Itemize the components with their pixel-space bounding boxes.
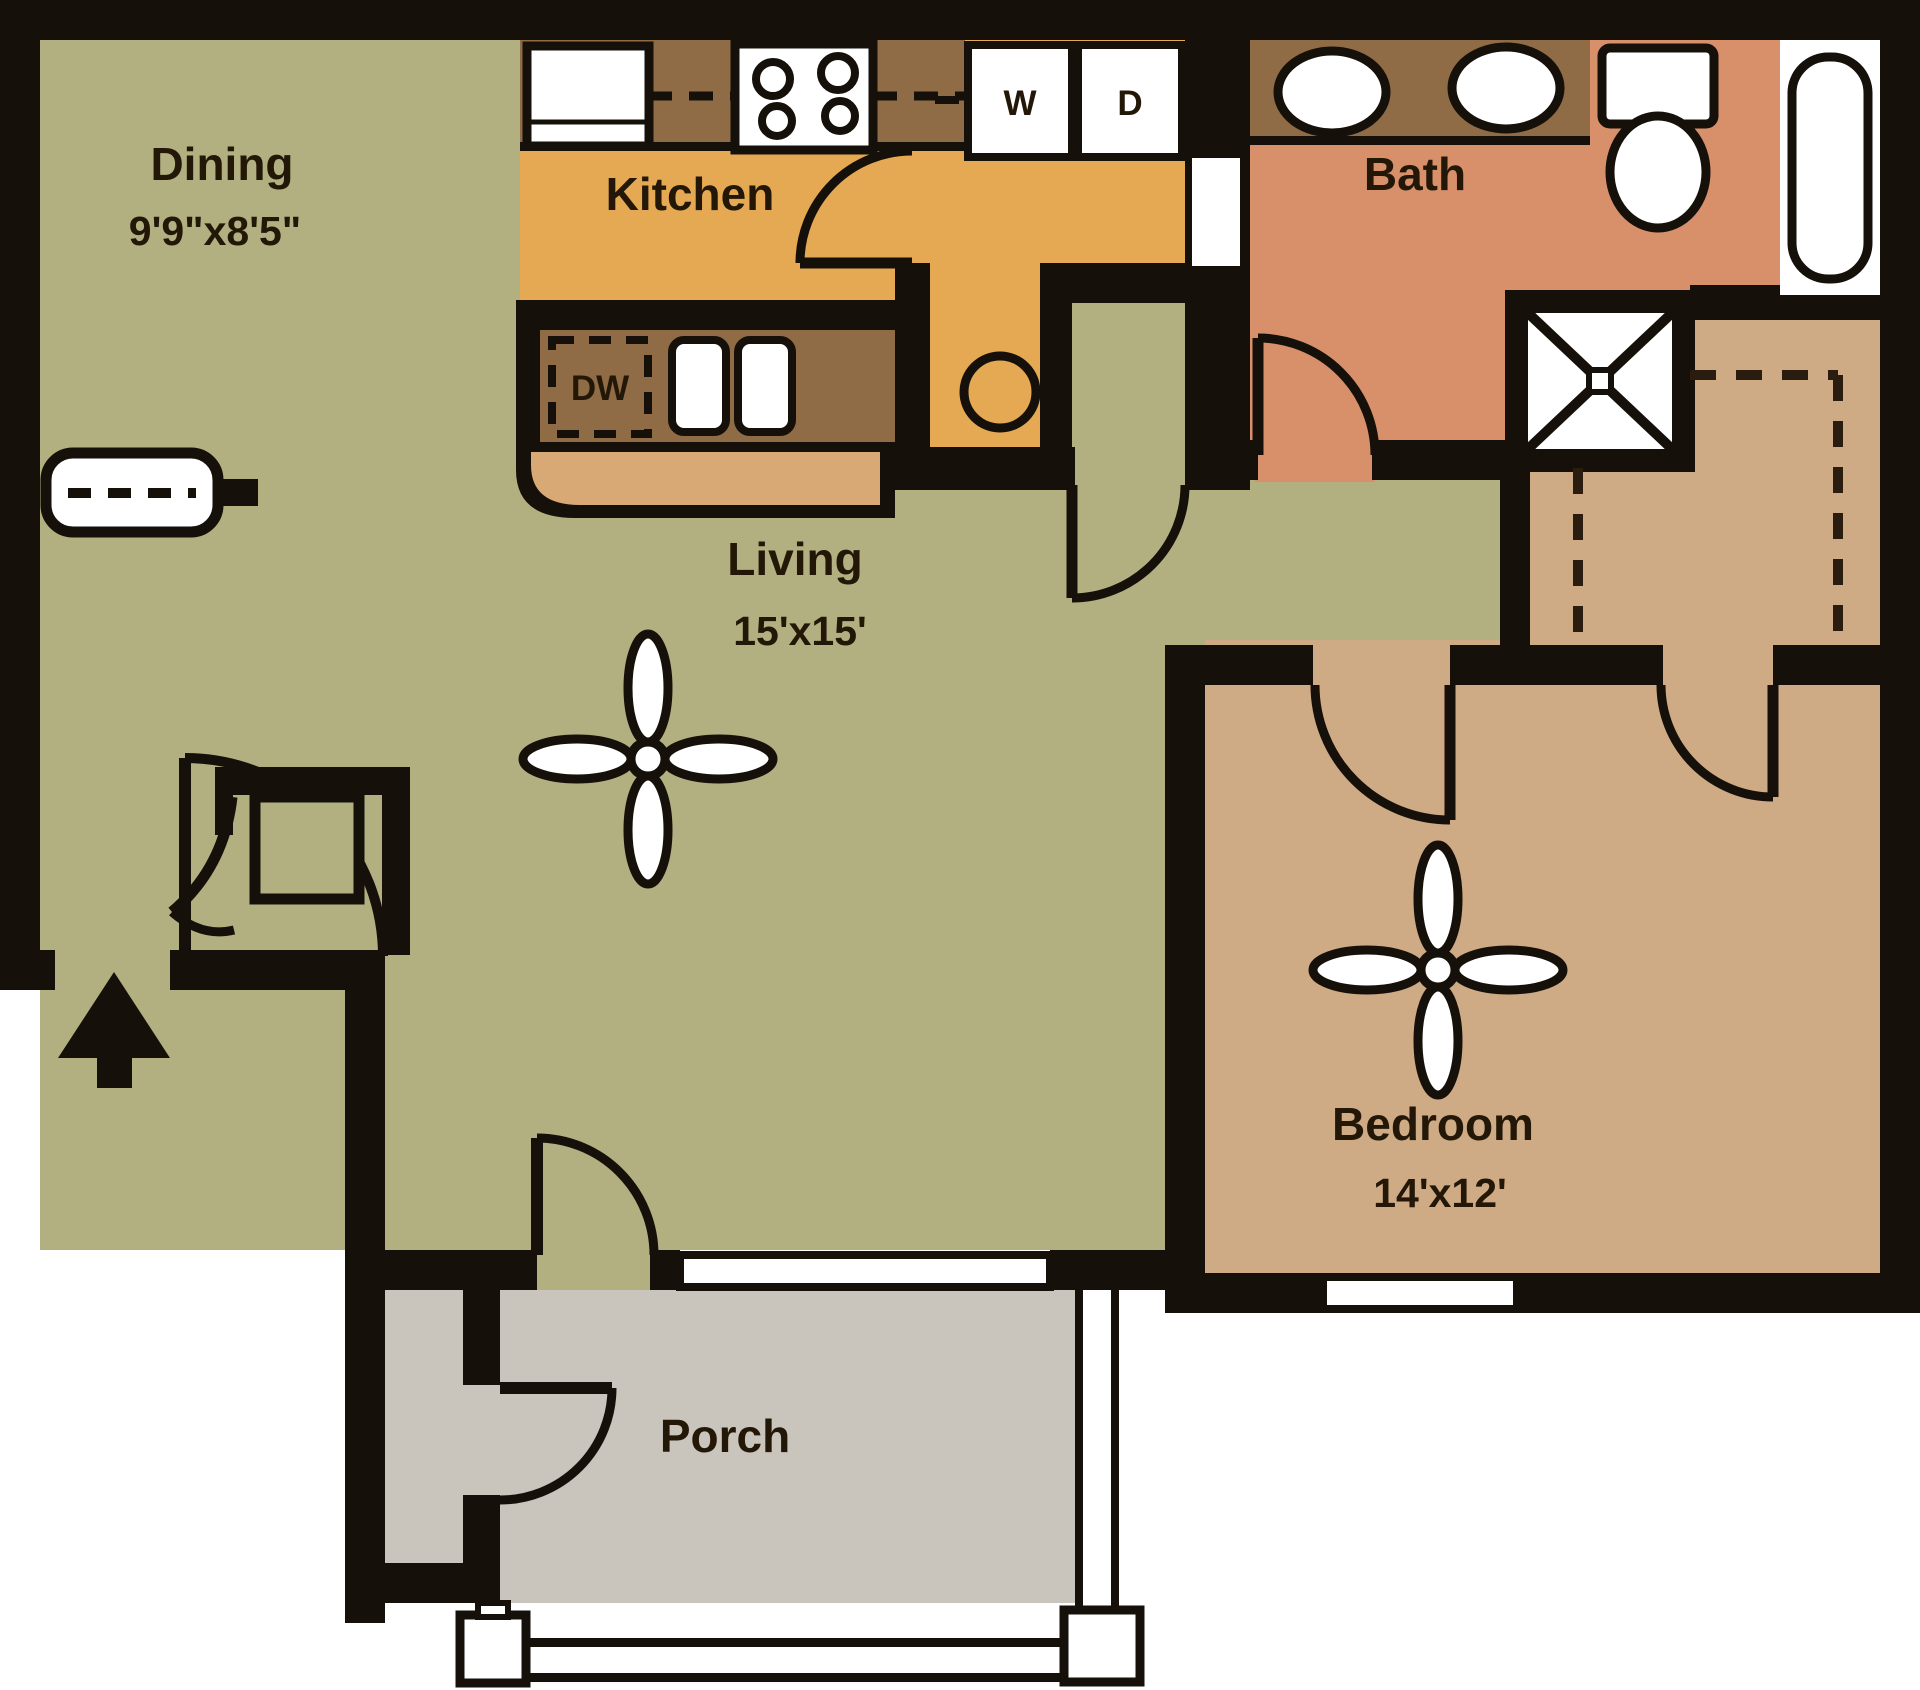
wall-porch-storage-right-a [463,1290,500,1385]
washer-label: W [1003,84,1036,123]
bedroom-dims: 14'x12' [1373,1170,1507,1216]
railing-line [1111,1290,1119,1620]
refrigerator-icon [527,46,649,146]
railing-line [1075,1290,1083,1620]
wall-left [0,0,40,990]
porch-door-gap-floor [537,1250,650,1290]
wall-living-bottom-c [1050,1250,1165,1290]
living-label: Living [727,533,862,585]
floor-plan-canvas: Dining 9'9"x8'5" Kitchen Bath Living 15'… [0,0,1920,1690]
dishwasher-label: DW [571,369,629,408]
wall-top [0,0,1920,40]
bathtub-icon [1792,57,1868,279]
wall-bedroom-top-a [1205,645,1313,685]
porch-post-right [1064,1610,1140,1682]
bedroom-alcove-floor-left [1530,443,1690,655]
shower-drain [1589,370,1611,392]
dryer-label: D [1117,84,1142,123]
laundry-bath-opening [1192,158,1240,266]
wall-bath-bottom-b [1372,440,1510,480]
pantry-closet-floor [1072,303,1185,480]
wall-right [1880,0,1920,1313]
railing-line [520,1638,1080,1647]
wall-living-bottom-a [345,1250,537,1290]
bath-door-gap-floor [1255,438,1375,482]
kitchen-label: Kitchen [606,168,775,220]
wall-living-left [345,950,385,1290]
wall-laundry-bottom [1040,263,1185,303]
living-dims: 15'x15' [733,608,867,654]
railing-line [520,1673,1080,1682]
wall-bedroom-top-b [1450,645,1663,685]
bedroom-label: Bedroom [1332,1098,1534,1150]
railing-band [520,1647,1080,1673]
wall-porch-storage-bottom [385,1563,500,1603]
bath-vanity-edge [1250,136,1590,145]
vanity-sink-left-icon [1278,51,1386,133]
railing-band [1083,1290,1111,1620]
dining-label: Dining [150,138,293,190]
burner-icon [821,56,855,90]
wall-bedroom-top-c [1773,645,1880,685]
dining-dims: 9'9"x8'5" [129,208,301,254]
wall-living-alcove [1500,443,1530,665]
entry-closet-unit-icon [255,797,359,899]
sink-left-icon [672,340,726,432]
wall-hall-pantry [1040,303,1072,480]
wall-porch-left [345,1290,385,1623]
wall-bedroom-bottom-b [1517,1273,1880,1313]
room-living-pocket-floor [1165,470,1500,655]
kitchen-counter-front [531,452,880,505]
wall-living-bottom-b [650,1250,680,1290]
burner-icon [762,106,792,136]
wall-bedroom-left [1165,645,1205,1313]
porch-post-left [460,1615,526,1683]
floor-plan-page: Dining 9'9"x8'5" Kitchen Bath Living 15'… [0,0,1920,1690]
bedroom-window [1323,1277,1517,1309]
post-stem [478,1603,508,1617]
wall-dining-bottom-a [0,950,55,990]
living-window [680,1255,1050,1287]
sink-right-icon [738,340,792,432]
porch-label: Porch [660,1410,790,1462]
burner-icon [756,62,790,96]
bath-label: Bath [1364,148,1466,200]
toilet-bowl-icon [1610,116,1706,228]
burner-icon [825,101,855,131]
vanity-sink-right-icon [1452,47,1560,129]
